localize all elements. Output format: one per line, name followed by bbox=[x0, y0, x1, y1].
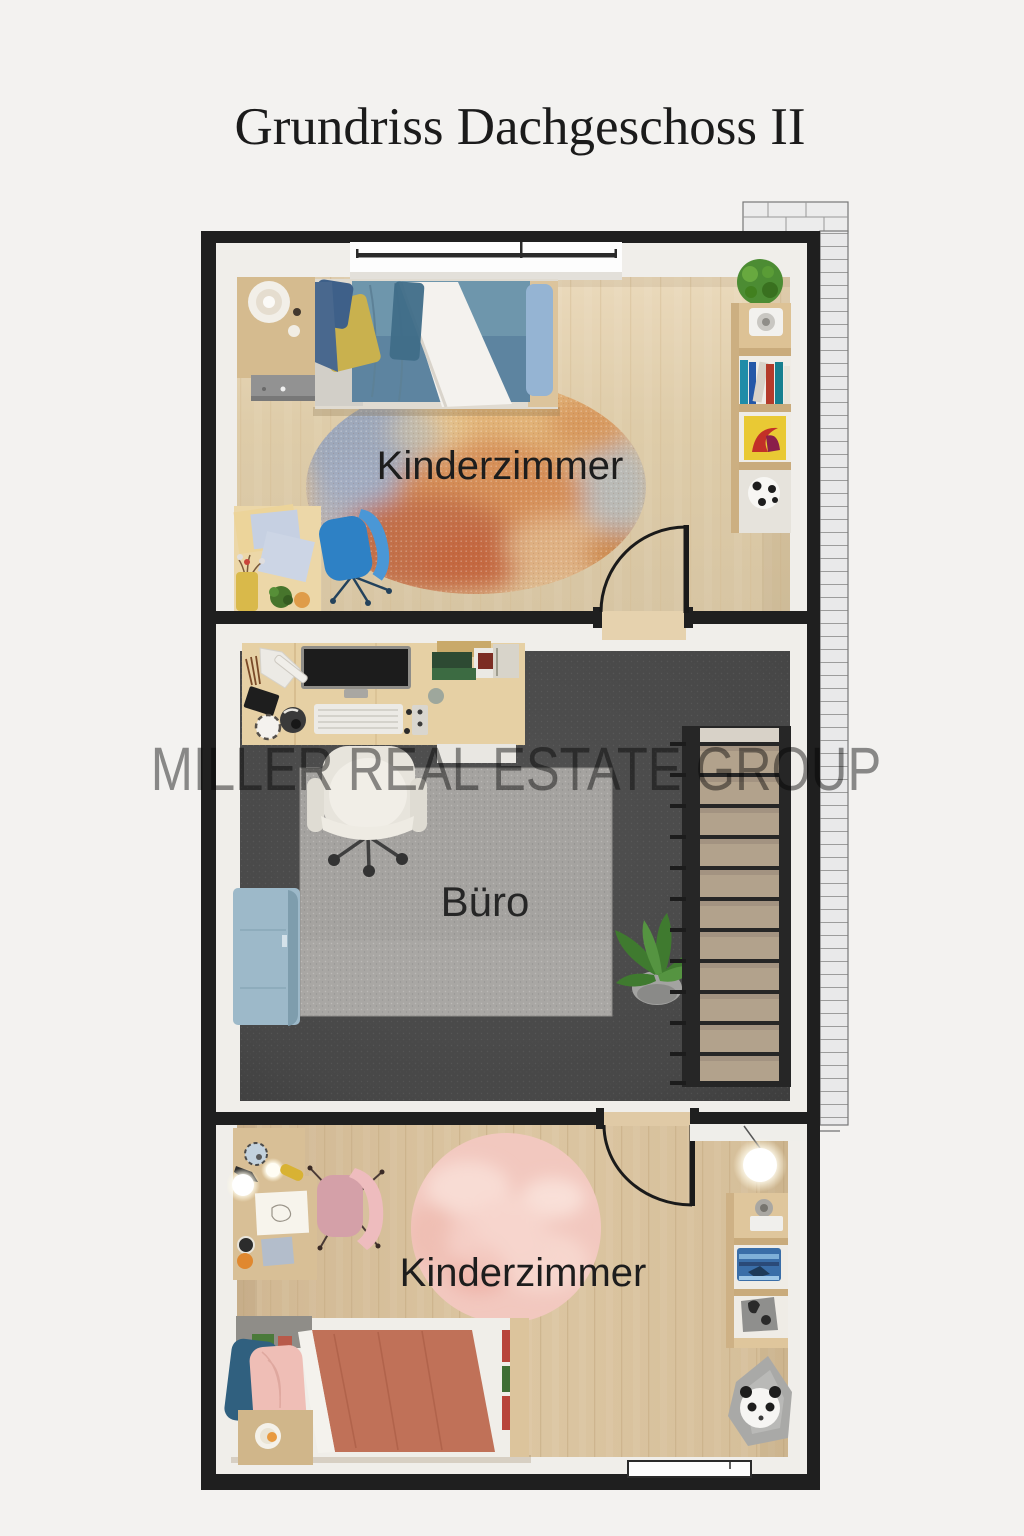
svg-text:Büro: Büro bbox=[441, 878, 530, 925]
svg-text:MILLER REAL ESTATE GROUP: MILLER REAL ESTATE GROUP bbox=[151, 735, 881, 804]
svg-text:Kinderzimmer: Kinderzimmer bbox=[400, 1251, 647, 1295]
svg-text:Grundriss Dachgeschoss II: Grundriss Dachgeschoss II bbox=[234, 98, 805, 156]
svg-text:Kinderzimmer: Kinderzimmer bbox=[377, 444, 624, 488]
